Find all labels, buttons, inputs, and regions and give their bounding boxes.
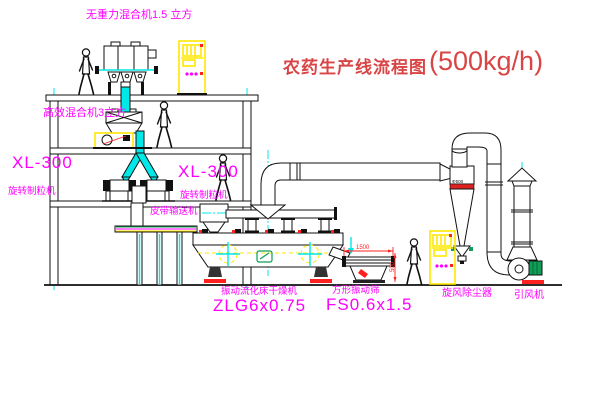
label-belt-conveyor: 皮带输送机 (150, 207, 198, 217)
label-screen-model: FS0.6x1.5 (326, 296, 413, 313)
svg-text:1500: 1500 (356, 245, 370, 251)
label-granulator-left-model: XL-300 (12, 154, 73, 171)
exhaust-duct (261, 163, 452, 205)
control-cabinet-right (430, 231, 455, 284)
drawing-title: 农药生产线流程图 (500kg/h) (283, 46, 543, 78)
label-granulator-mid-name: 旋转制粒机 (180, 191, 228, 201)
svg-text:Φ500: Φ500 (452, 179, 464, 184)
dryer-feed-hopper (200, 204, 228, 232)
title-chinese: 农药生产线流程图 (283, 46, 427, 78)
cad-drawing-viewport: Φ500 (0, 0, 600, 403)
label-cyclone: 旋风除尘器 (442, 289, 492, 299)
label-fan: 引风机 (514, 291, 544, 301)
title-capacity: (500kg/h) (429, 46, 543, 78)
person-figure-2 (157, 102, 172, 147)
label-granulator-left-name: 旋转制粒机 (8, 187, 56, 197)
label-dryer-model: ZLG6x0.75 (213, 297, 306, 314)
person-figure-4 (407, 239, 422, 284)
person-figure-1 (79, 49, 94, 94)
label-top-mixer: 无重力混合机1.5 立方 (86, 10, 192, 21)
exhaust-stack (508, 168, 536, 247)
label-granulator-mid-model: XL-300 (178, 163, 239, 180)
svg-text:500: 500 (390, 261, 396, 272)
top-mixer-machine (95, 42, 158, 113)
label-second-mixer: 高效混合机3立方 (43, 108, 126, 119)
vibrating-screen-machine (342, 256, 395, 283)
belt-conveyor-machine (115, 226, 197, 285)
induced-draft-fan-machine (507, 247, 544, 284)
control-cabinet-top (177, 41, 207, 94)
y-distribution-pipe (122, 153, 158, 177)
